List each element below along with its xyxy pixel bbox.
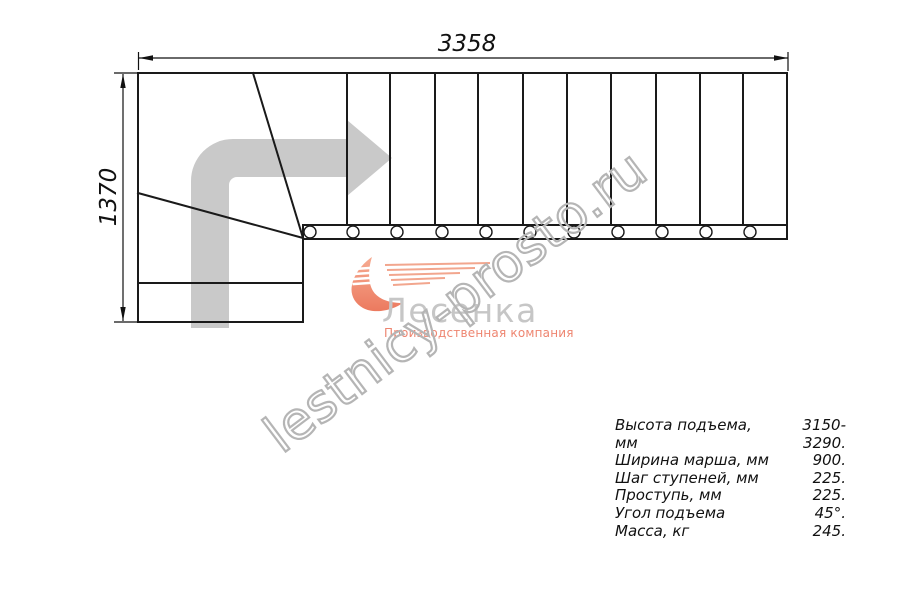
spec-value: 45°. bbox=[815, 505, 846, 523]
stringer-strip bbox=[303, 225, 787, 239]
dimension-total-width: 1370 bbox=[96, 73, 139, 322]
dimension-width-value: 1370 bbox=[96, 168, 122, 227]
spec-label: Масса, кг bbox=[615, 523, 689, 541]
spec-label: Ширина марша, мм bbox=[615, 452, 769, 470]
spec-row: Угол подъема 45°. bbox=[615, 505, 846, 523]
spec-row: Проступь, мм 225. bbox=[615, 487, 846, 505]
spec-label: Проступь, мм bbox=[615, 487, 722, 505]
spec-value: 3150-3290. bbox=[766, 417, 846, 452]
stringer-bolts bbox=[304, 226, 756, 238]
logo-brand-name: Лесенка bbox=[382, 294, 538, 328]
dim-arrow-left bbox=[139, 55, 153, 61]
spec-row: Масса, кг 245. bbox=[615, 523, 846, 541]
staircase-drawing-page: 3358 1370 bbox=[0, 0, 900, 600]
spec-label: Шаг ступеней, мм bbox=[615, 470, 759, 488]
spec-row: Высота подъема, мм 3150-3290. bbox=[615, 417, 846, 452]
dimension-length-value: 3358 bbox=[438, 31, 497, 57]
spec-row: Шаг ступеней, мм 225. bbox=[615, 470, 846, 488]
logo-tagline: Производственная компания bbox=[384, 326, 574, 340]
dim-arrow-top bbox=[120, 74, 125, 88]
dimension-total-length: 3358 bbox=[139, 31, 789, 71]
spec-value: 225. bbox=[813, 487, 846, 505]
dim-arrow-right bbox=[774, 55, 788, 61]
spec-row: Ширина марша, мм 900. bbox=[615, 452, 846, 470]
spec-value: 900. bbox=[813, 452, 846, 470]
tread-lines bbox=[347, 73, 743, 225]
spec-label: Высота подъема, мм bbox=[615, 417, 766, 452]
spec-value: 245. bbox=[813, 523, 846, 541]
spec-value: 225. bbox=[813, 470, 846, 488]
dim-arrow-bottom bbox=[120, 307, 125, 321]
spec-label: Угол подъема bbox=[615, 505, 725, 523]
spec-table: Высота подъема, мм 3150-3290. Ширина мар… bbox=[615, 417, 846, 540]
